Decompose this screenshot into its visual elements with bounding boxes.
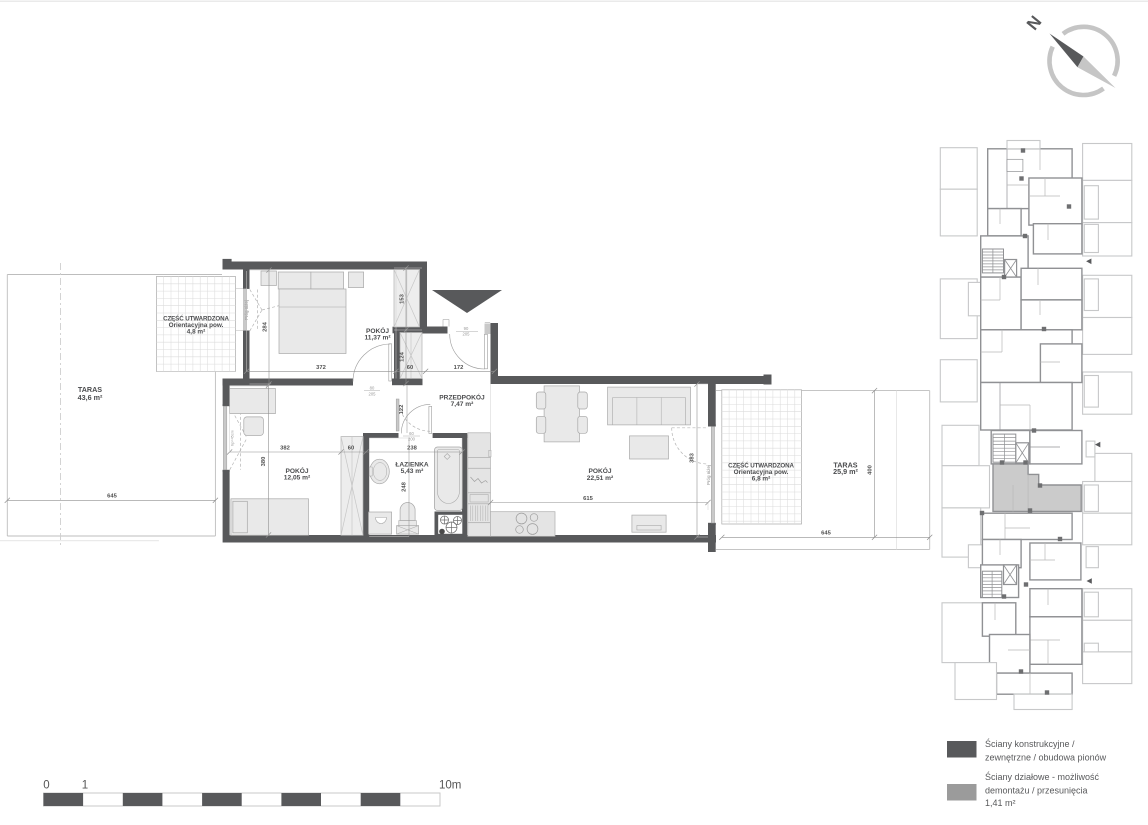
svg-text:6,8 m²: 6,8 m² — [752, 476, 770, 483]
svg-text:60: 60 — [407, 365, 413, 371]
svg-text:400: 400 — [868, 465, 874, 475]
svg-text:12,05 m²: 12,05 m² — [284, 475, 311, 482]
svg-text:10m: 10m — [439, 780, 461, 792]
svg-text:124: 124 — [400, 351, 406, 361]
svg-text:11,37 m²: 11,37 m² — [364, 335, 391, 342]
svg-text:382: 382 — [280, 446, 290, 452]
svg-text:N: N — [1023, 12, 1045, 34]
svg-text:demontażu / przesunięcia: demontażu / przesunięcia — [985, 785, 1088, 795]
svg-text:25,9 m²: 25,9 m² — [833, 467, 858, 476]
svg-text:Ściany działowe - możliwość: Ściany działowe - możliwość — [985, 771, 1100, 782]
svg-text:172: 172 — [454, 365, 464, 371]
svg-text:7,47 m²: 7,47 m² — [451, 401, 475, 408]
svg-text:372: 372 — [316, 365, 326, 371]
svg-text:122: 122 — [399, 405, 405, 415]
svg-text:Ściany konstrukcyjne /: Ściany konstrukcyjne / — [985, 738, 1075, 749]
svg-text:43,6 m²: 43,6 m² — [78, 393, 103, 402]
svg-text:zewnętrzne / obudowa pionów: zewnętrzne / obudowa pionów — [985, 752, 1107, 762]
svg-text:90: 90 — [464, 326, 469, 331]
svg-text:80: 80 — [370, 386, 375, 391]
svg-text:60: 60 — [409, 431, 414, 436]
svg-text:615: 615 — [583, 496, 593, 502]
svg-text:POKÓJ: POKÓJ — [588, 466, 611, 475]
svg-text:60: 60 — [348, 446, 354, 452]
svg-text:153: 153 — [400, 293, 406, 303]
svg-text:645: 645 — [821, 531, 831, 537]
svg-text:205: 205 — [369, 392, 377, 397]
svg-text:248: 248 — [402, 481, 408, 491]
svg-text:1,41 m²: 1,41 m² — [985, 798, 1016, 808]
svg-text:22,51 m²: 22,51 m² — [587, 475, 614, 482]
svg-text:205: 205 — [463, 332, 471, 337]
svg-text:5,43 m²: 5,43 m² — [401, 468, 425, 475]
svg-text:4,8 m²: 4,8 m² — [187, 329, 205, 336]
svg-text:hp=45cm: hp=45cm — [231, 430, 235, 446]
svg-text:645: 645 — [107, 494, 117, 500]
svg-text:1: 1 — [82, 780, 88, 792]
svg-text:380: 380 — [261, 457, 267, 467]
svg-text:383: 383 — [690, 452, 696, 462]
svg-text:0: 0 — [43, 780, 49, 792]
svg-text:Próg niżej: Próg niżej — [706, 465, 711, 485]
svg-text:238: 238 — [407, 446, 417, 452]
svg-text:200: 200 — [408, 437, 416, 442]
svg-text:284: 284 — [263, 321, 269, 331]
